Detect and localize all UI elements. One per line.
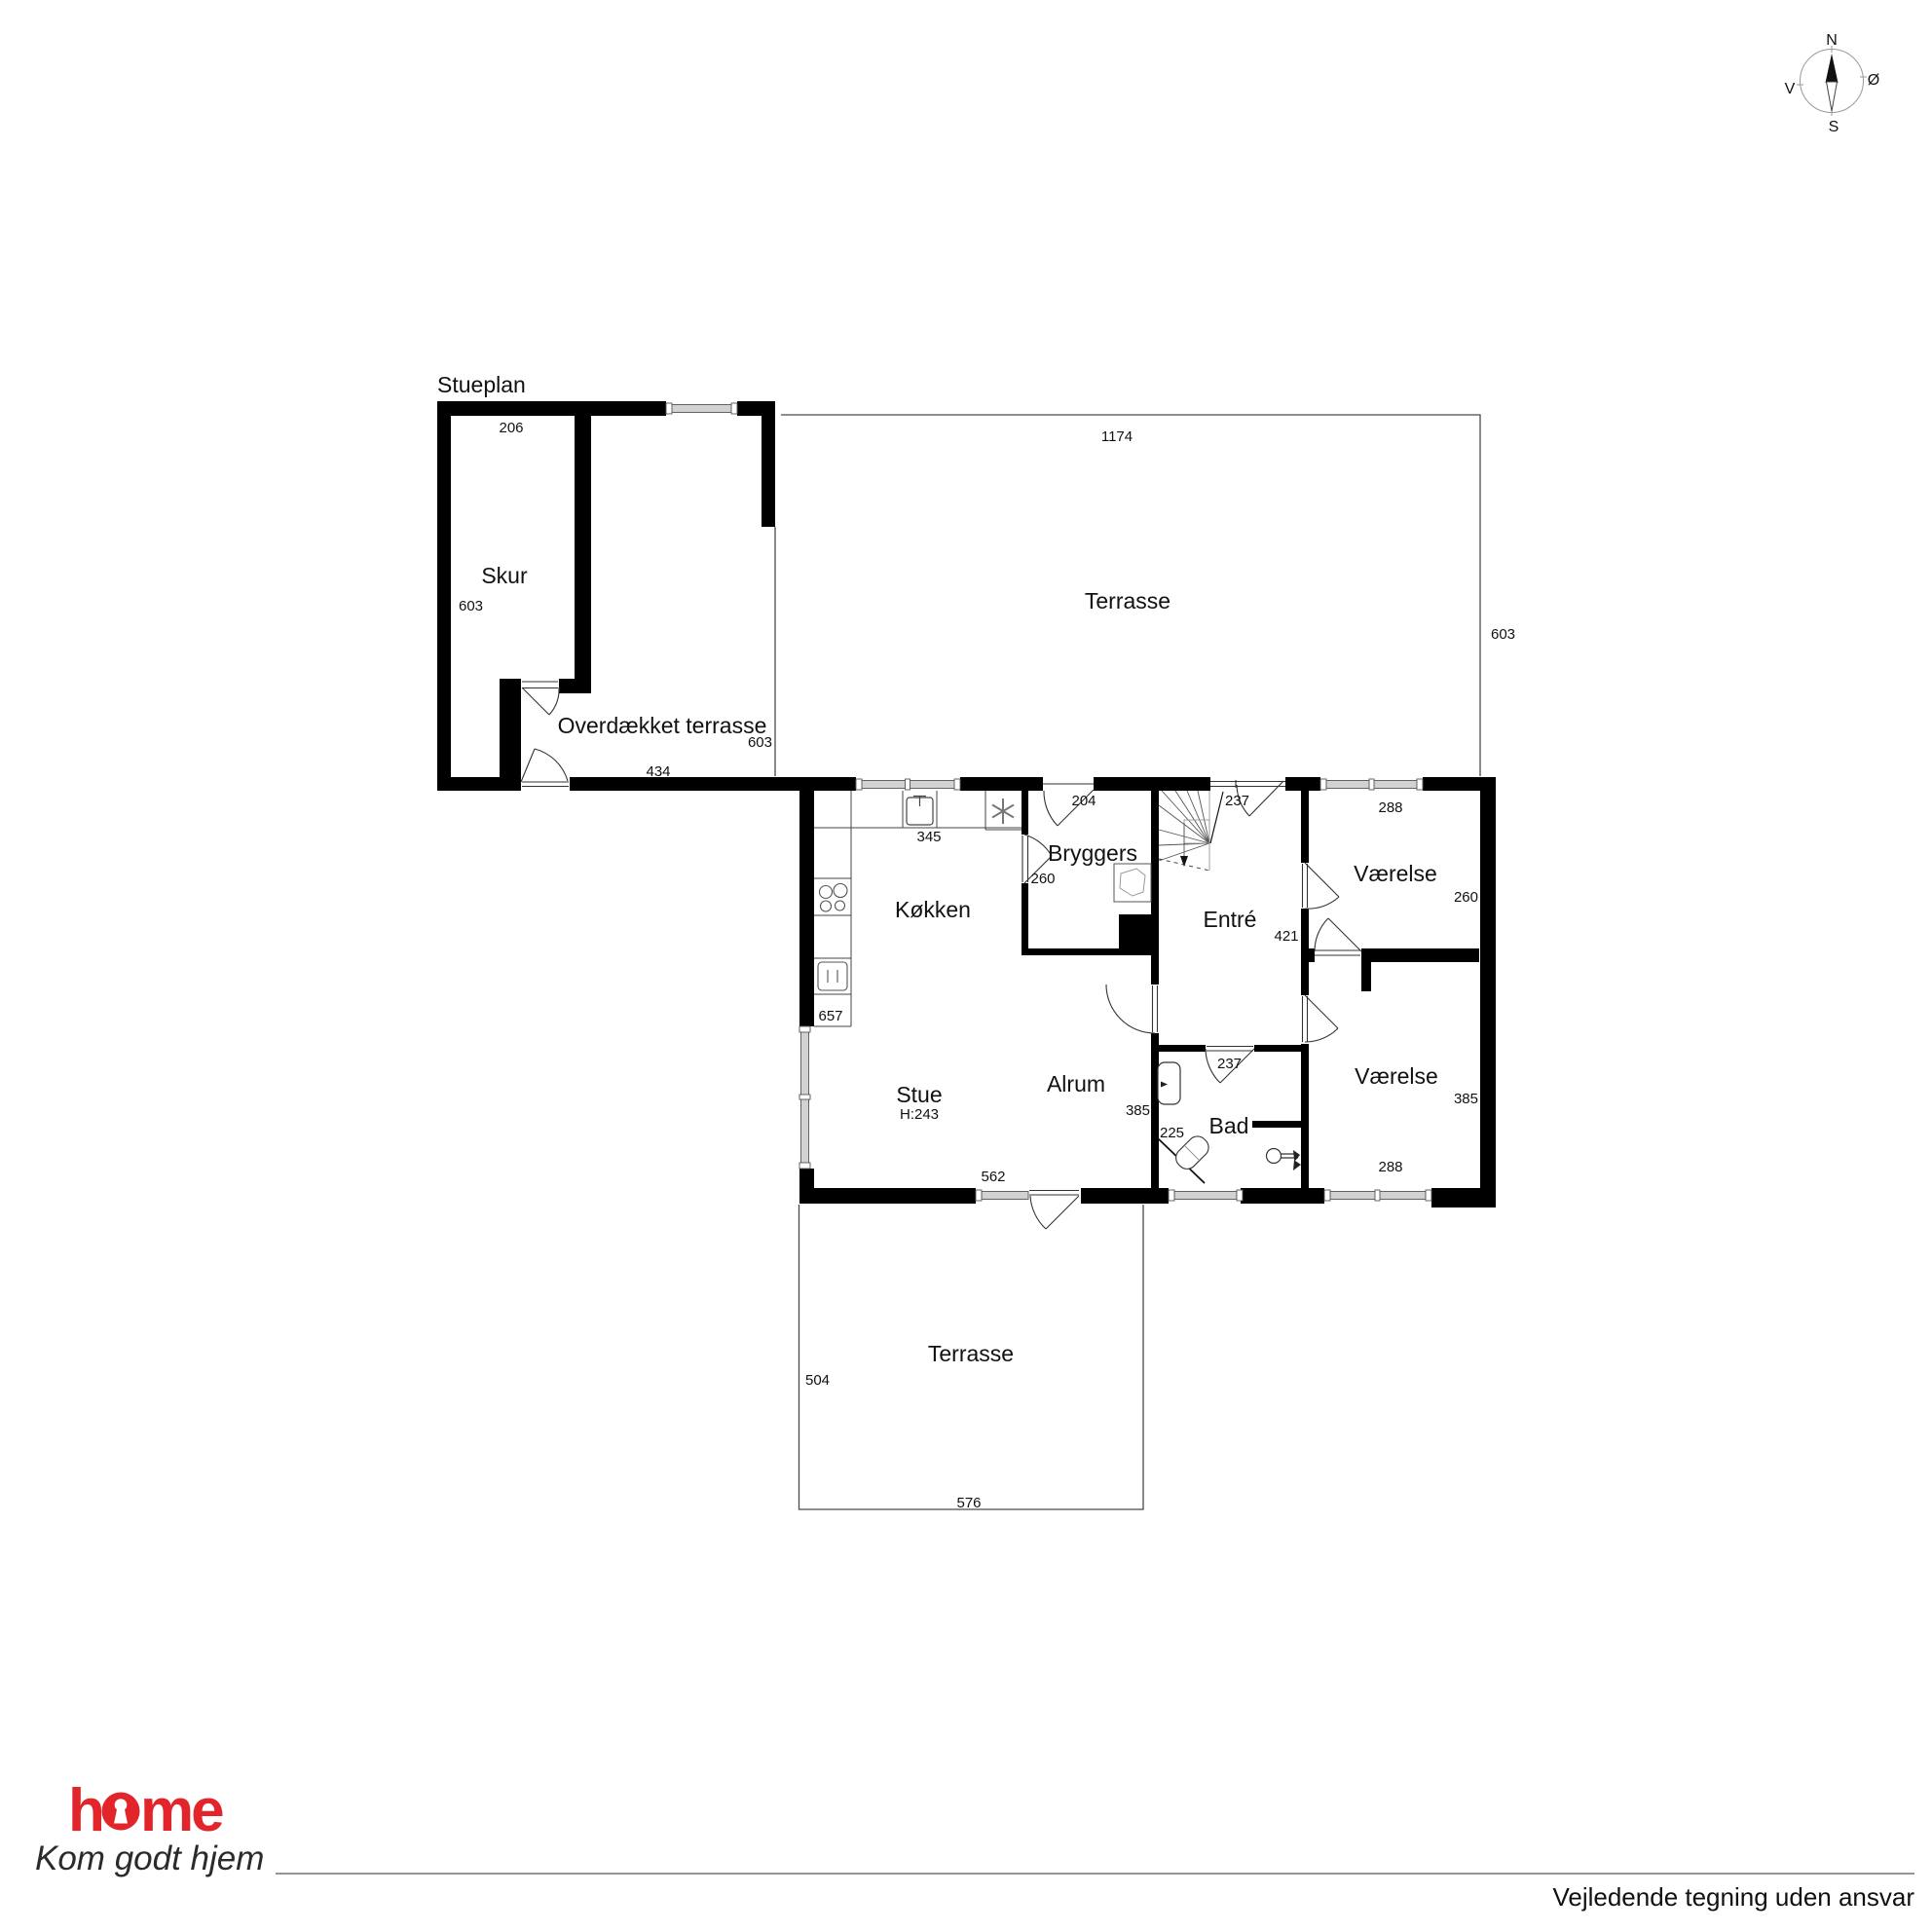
svg-text:V: V (1785, 81, 1796, 97)
svg-text:204: 204 (1071, 793, 1096, 809)
svg-text:me: me (140, 1777, 223, 1844)
svg-text:Vejledende tegning uden ansvar: Vejledende tegning uden ansvar (1552, 1882, 1914, 1912)
svg-text:Stue: Stue (896, 1082, 942, 1107)
svg-text:Køkken: Køkken (895, 897, 971, 922)
svg-text:Overdækket terrasse: Overdækket terrasse (558, 713, 767, 738)
svg-text:603: 603 (748, 734, 772, 751)
svg-text:576: 576 (956, 1495, 981, 1511)
svg-text:657: 657 (818, 1008, 842, 1024)
svg-text:Skur: Skur (481, 563, 528, 588)
svg-text:603: 603 (459, 598, 483, 614)
svg-text:Terrasse: Terrasse (1085, 588, 1170, 613)
svg-text:421: 421 (1274, 928, 1298, 945)
svg-text:h: h (68, 1777, 102, 1844)
svg-text:385: 385 (1454, 1091, 1478, 1107)
svg-text:N: N (1826, 32, 1838, 49)
svg-text:434: 434 (646, 763, 670, 780)
svg-text:603: 603 (1491, 626, 1515, 643)
svg-text:206: 206 (499, 420, 523, 436)
svg-text:260: 260 (1030, 871, 1055, 887)
svg-text:237: 237 (1225, 793, 1249, 809)
svg-text:Ø: Ø (1868, 72, 1879, 89)
svg-text:562: 562 (981, 1169, 1005, 1185)
svg-text:Bryggers: Bryggers (1048, 840, 1137, 866)
svg-text:Kom godt hjem: Kom godt hjem (35, 1839, 264, 1877)
svg-text:Alrum: Alrum (1047, 1071, 1105, 1096)
svg-text:225: 225 (1160, 1125, 1184, 1141)
svg-text:385: 385 (1126, 1102, 1150, 1119)
svg-text:Stueplan: Stueplan (437, 372, 526, 397)
svg-text:260: 260 (1454, 889, 1478, 906)
svg-text:288: 288 (1378, 799, 1402, 816)
svg-text:504: 504 (805, 1372, 830, 1389)
svg-text:237: 237 (1217, 1056, 1242, 1072)
svg-text:345: 345 (916, 829, 941, 845)
svg-text:Entré: Entré (1204, 907, 1257, 932)
svg-text:H:243: H:243 (900, 1106, 939, 1123)
svg-text:Terrasse: Terrasse (928, 1341, 1014, 1366)
svg-text:S: S (1829, 119, 1839, 135)
svg-text:Værelse: Værelse (1354, 861, 1437, 886)
svg-text:Værelse: Værelse (1355, 1063, 1438, 1089)
svg-text:288: 288 (1378, 1159, 1402, 1175)
svg-text:Bad: Bad (1209, 1113, 1249, 1138)
svg-text:1174: 1174 (1101, 428, 1133, 445)
